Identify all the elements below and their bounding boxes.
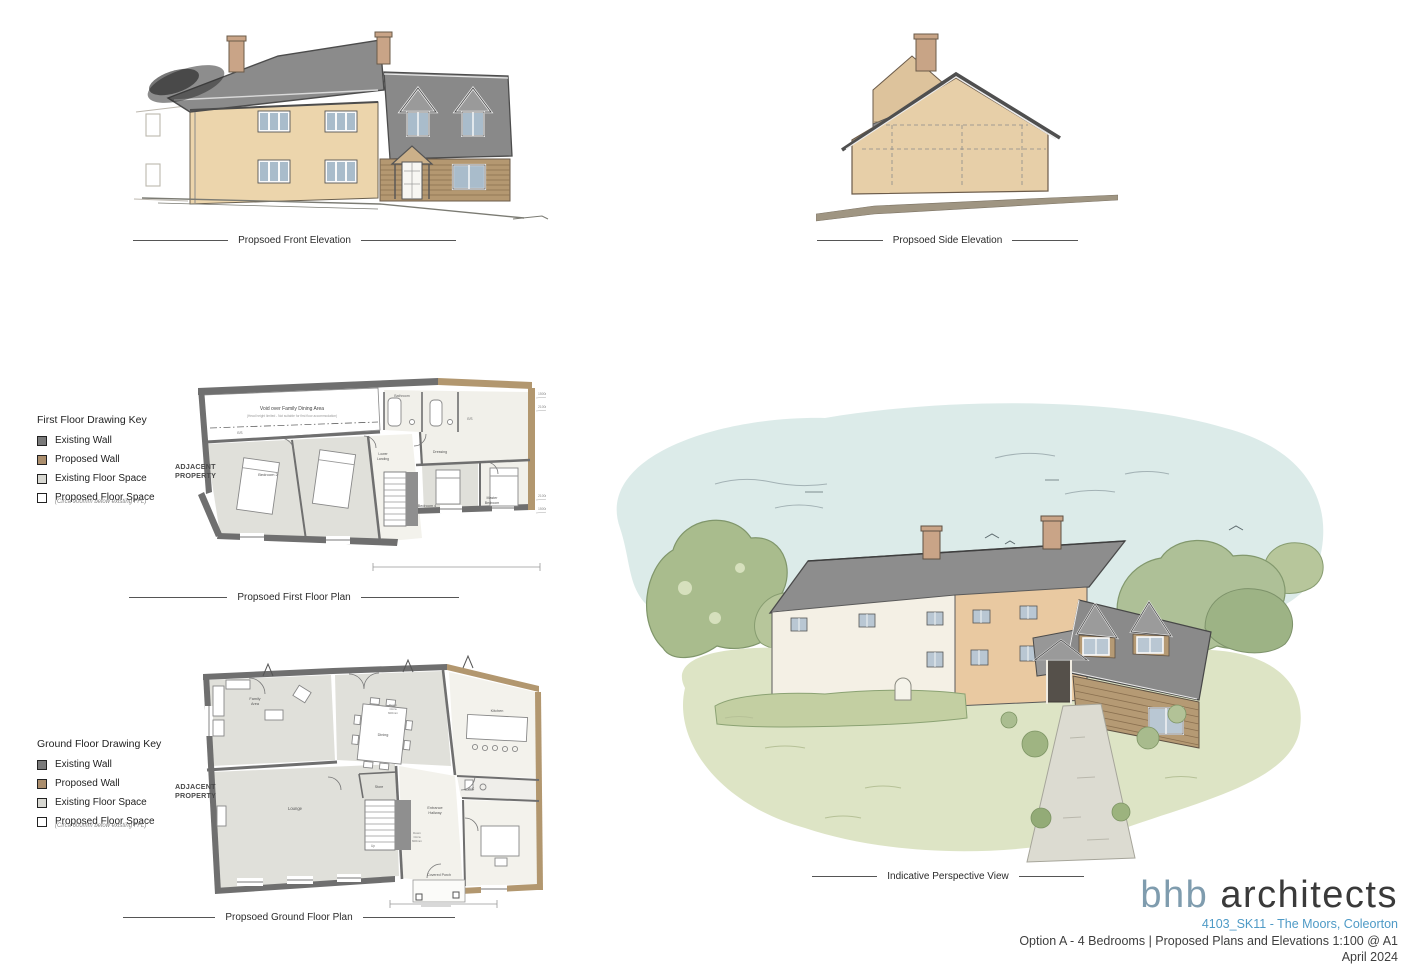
side-elevation-caption: Propsoed Side Elevation bbox=[817, 235, 1078, 246]
proposed-wall bbox=[528, 388, 535, 510]
room-label-master: Master bbox=[487, 496, 499, 500]
ground-floor-plan-caption: Propsoed Ground Floor Plan bbox=[123, 912, 455, 923]
first-floor-plan-drawing: Void over Family Dining Area (Head heigh… bbox=[140, 352, 546, 588]
first-floor-plan-caption-label: Propsoed First Floor Plan bbox=[237, 592, 350, 603]
proposed-wall-swatch bbox=[37, 455, 47, 465]
room-label-ensuite: E/S bbox=[467, 417, 472, 421]
logo-architects: architects bbox=[1220, 874, 1398, 916]
svg-text:2100mm HH: 2100mm HH bbox=[538, 405, 546, 409]
svg-text:Bedroom: Bedroom bbox=[485, 501, 500, 505]
adjacent-property-label: ADJACENT bbox=[175, 782, 216, 791]
room-label-kitchen: Kitchen bbox=[491, 709, 504, 713]
room-label-bathroom: Bathroom bbox=[394, 394, 410, 398]
svg-text:Hallway: Hallway bbox=[428, 811, 441, 815]
room-label-void: Void over Family Dining Area bbox=[260, 406, 324, 412]
room-label-lower-landing: Lower bbox=[378, 452, 388, 456]
title-block: bhb architects 4103_SK11 - The Moors, Co… bbox=[798, 876, 1398, 964]
ground-band bbox=[816, 195, 1118, 221]
svg-text:2100mm HH: 2100mm HH bbox=[538, 494, 546, 498]
bhb-architects-logo: bhb architects bbox=[798, 876, 1398, 914]
existing-floor-swatch bbox=[37, 474, 47, 484]
drawing-date: April 2024 bbox=[798, 951, 1398, 964]
side-elevation-caption-label: Propsoed Side Elevation bbox=[893, 235, 1003, 246]
room-label-family: Family bbox=[249, 697, 260, 701]
staircase bbox=[365, 800, 411, 850]
perspective-view-drawing bbox=[565, 388, 1347, 870]
svg-text:Landing: Landing bbox=[377, 457, 389, 461]
svg-text:PROPERTY: PROPERTY bbox=[175, 471, 216, 480]
existing-floor-swatch bbox=[37, 798, 47, 808]
project-reference: 4103_SK11 - The Moors, Coleorton bbox=[798, 918, 1398, 931]
first-floor-plan-caption: Propsoed First Floor Plan bbox=[129, 592, 459, 603]
room-label-store: Store bbox=[375, 785, 384, 789]
dimension-line bbox=[373, 563, 540, 571]
drawing-description: Option A - 4 Bedrooms | Proposed Plans a… bbox=[798, 935, 1398, 948]
label-up: Up bbox=[371, 844, 375, 848]
logo-bhb: bhb bbox=[1140, 874, 1208, 916]
adjacent-property-label: ADJACENT bbox=[175, 462, 216, 471]
covered-porch bbox=[413, 880, 465, 906]
existing-wall-swatch bbox=[37, 760, 47, 770]
room-label-dining: Dining bbox=[378, 733, 389, 737]
svg-text:PROPERTY: PROPERTY bbox=[175, 791, 216, 800]
wing-roof bbox=[384, 72, 512, 159]
timber-cladding bbox=[380, 159, 510, 201]
room-label-bedroom4: Bedroom 4 bbox=[418, 504, 437, 508]
adjacent-property-outline bbox=[134, 106, 188, 201]
chimney bbox=[914, 34, 938, 71]
svg-text:1500mm HH: 1500mm HH bbox=[538, 392, 546, 396]
room-label-ensuite: E/S bbox=[237, 431, 242, 435]
front-elevation-drawing bbox=[128, 26, 550, 228]
side-elevation-drawing bbox=[816, 28, 1118, 226]
proposed-wall-swatch bbox=[37, 779, 47, 789]
room-label-entrance: Entrance bbox=[427, 806, 442, 810]
svg-text:Area: Area bbox=[251, 702, 260, 706]
ground-floor-plan-caption-label: Propsoed Ground Floor Plan bbox=[225, 912, 352, 923]
staircase bbox=[384, 472, 418, 526]
svg-text:600mm: 600mm bbox=[388, 711, 399, 715]
front-elevation-caption-label: Propsoed Front Elevation bbox=[238, 235, 351, 246]
proposed-floor-swatch bbox=[37, 817, 47, 827]
front-elevation-caption: Propsoed Front Elevation bbox=[133, 235, 456, 246]
drawing-sheet: Propsoed Front Elevation Propsoed Side E… bbox=[0, 0, 1428, 966]
room-label-bedroom2: Bedroom 2 bbox=[258, 472, 278, 477]
room-label-lounge: Lounge bbox=[288, 806, 303, 811]
proposed-floor-swatch bbox=[37, 493, 47, 503]
room-label-wc: W/C bbox=[468, 787, 475, 791]
existing-wall-swatch bbox=[37, 436, 47, 446]
svg-text:1500mm HH: 1500mm HH bbox=[538, 507, 546, 511]
room-label-covered-porch: Covered Porch bbox=[427, 873, 451, 877]
room-label-void-note: (Head height limited - Not suitable for … bbox=[247, 414, 337, 418]
proposed-wall bbox=[438, 378, 532, 389]
svg-text:600mm: 600mm bbox=[412, 839, 423, 843]
room-label-dressing: Dressing bbox=[433, 450, 447, 454]
head-height-dims: 1500mm HH 2100mm HH 2100mm HH 1500mm HH bbox=[536, 392, 546, 513]
ground-floor-plan-drawing: Family Area Dining Kitchen Down Circa 60… bbox=[145, 648, 547, 910]
